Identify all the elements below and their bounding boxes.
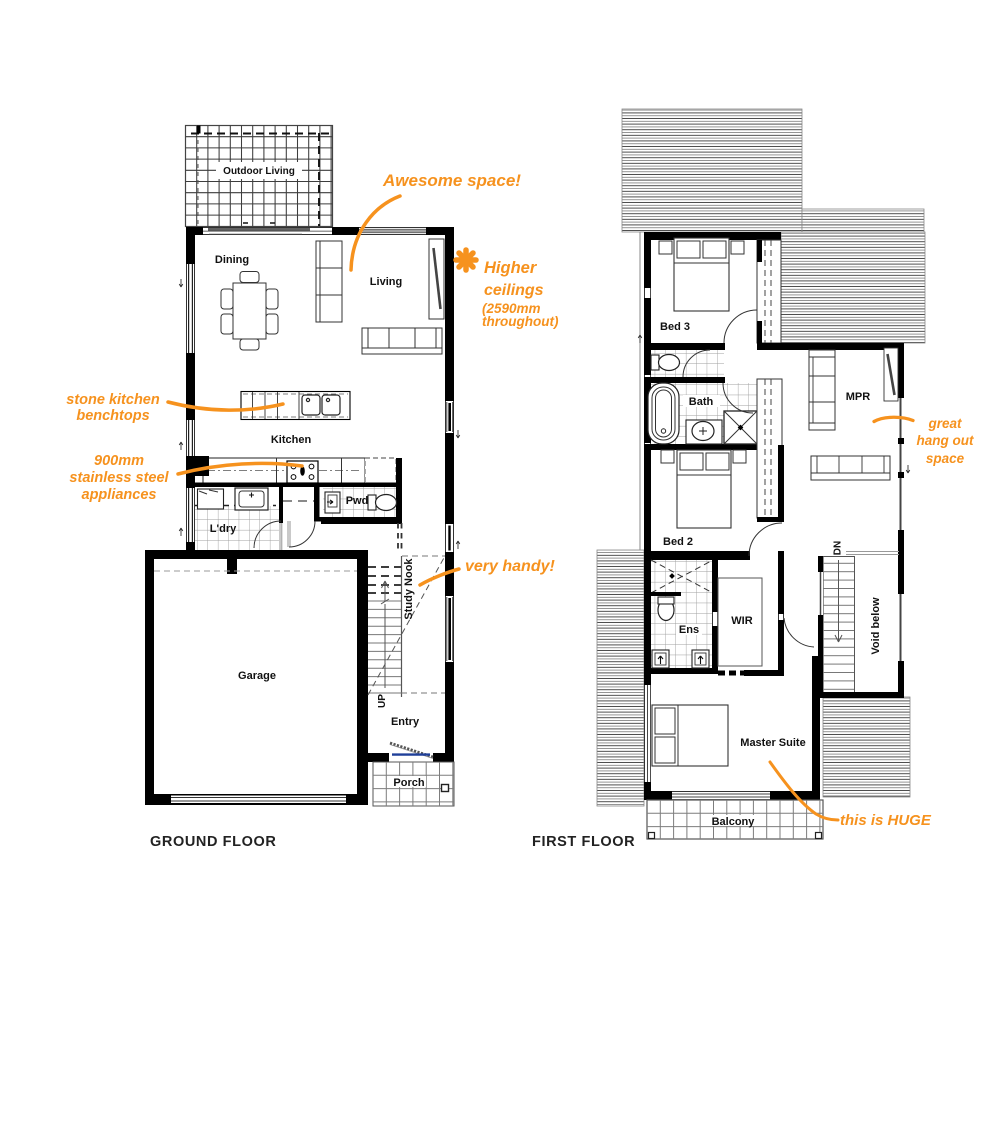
- svg-text:very handy!: very handy!: [465, 558, 555, 575]
- svg-text:MPR: MPR: [846, 391, 871, 403]
- svg-text:Bath: Bath: [689, 396, 714, 408]
- svg-text:hang out: hang out: [917, 433, 974, 448]
- svg-text:ceilings: ceilings: [484, 282, 544, 299]
- svg-text:Awesome space!: Awesome space!: [382, 171, 521, 190]
- svg-text:Bed 3: Bed 3: [660, 321, 690, 333]
- svg-text:Balcony: Balcony: [712, 816, 756, 828]
- svg-text:stainless steel: stainless steel: [69, 470, 169, 486]
- svg-text:stone kitchen: stone kitchen: [66, 392, 160, 408]
- svg-text:Study Nook: Study Nook: [403, 558, 415, 620]
- svg-text:Living: Living: [370, 276, 402, 288]
- svg-text:WIR: WIR: [731, 615, 752, 627]
- svg-text:great: great: [927, 416, 962, 431]
- svg-text:benchtops: benchtops: [76, 408, 149, 424]
- svg-text:Bed 2: Bed 2: [663, 536, 693, 548]
- svg-text:throughout): throughout): [482, 314, 559, 329]
- svg-text:this is HUGE: this is HUGE: [840, 812, 932, 829]
- svg-text:Porch: Porch: [393, 777, 424, 789]
- svg-text:Kitchen: Kitchen: [271, 434, 312, 446]
- svg-text:L'dry: L'dry: [210, 523, 237, 535]
- svg-text:Garage: Garage: [238, 670, 276, 682]
- svg-text:Higher: Higher: [484, 259, 538, 277]
- svg-text:UP: UP: [377, 694, 388, 708]
- svg-text:Outdoor Living: Outdoor Living: [223, 166, 295, 177]
- svg-text:Entry: Entry: [391, 716, 420, 728]
- svg-text:Ens: Ens: [679, 624, 699, 636]
- svg-text:Pwd: Pwd: [346, 495, 369, 507]
- svg-text:Master Suite: Master Suite: [740, 737, 805, 749]
- svg-text:FIRST FLOOR: FIRST FLOOR: [532, 834, 635, 850]
- svg-text:900mm: 900mm: [94, 453, 144, 469]
- svg-text:GROUND FLOOR: GROUND FLOOR: [150, 834, 276, 850]
- svg-text:Void below: Void below: [870, 597, 882, 655]
- svg-text:appliances: appliances: [82, 487, 157, 503]
- svg-text:space: space: [926, 451, 965, 466]
- svg-text:Dining: Dining: [215, 254, 249, 266]
- svg-text:DN: DN: [833, 541, 844, 555]
